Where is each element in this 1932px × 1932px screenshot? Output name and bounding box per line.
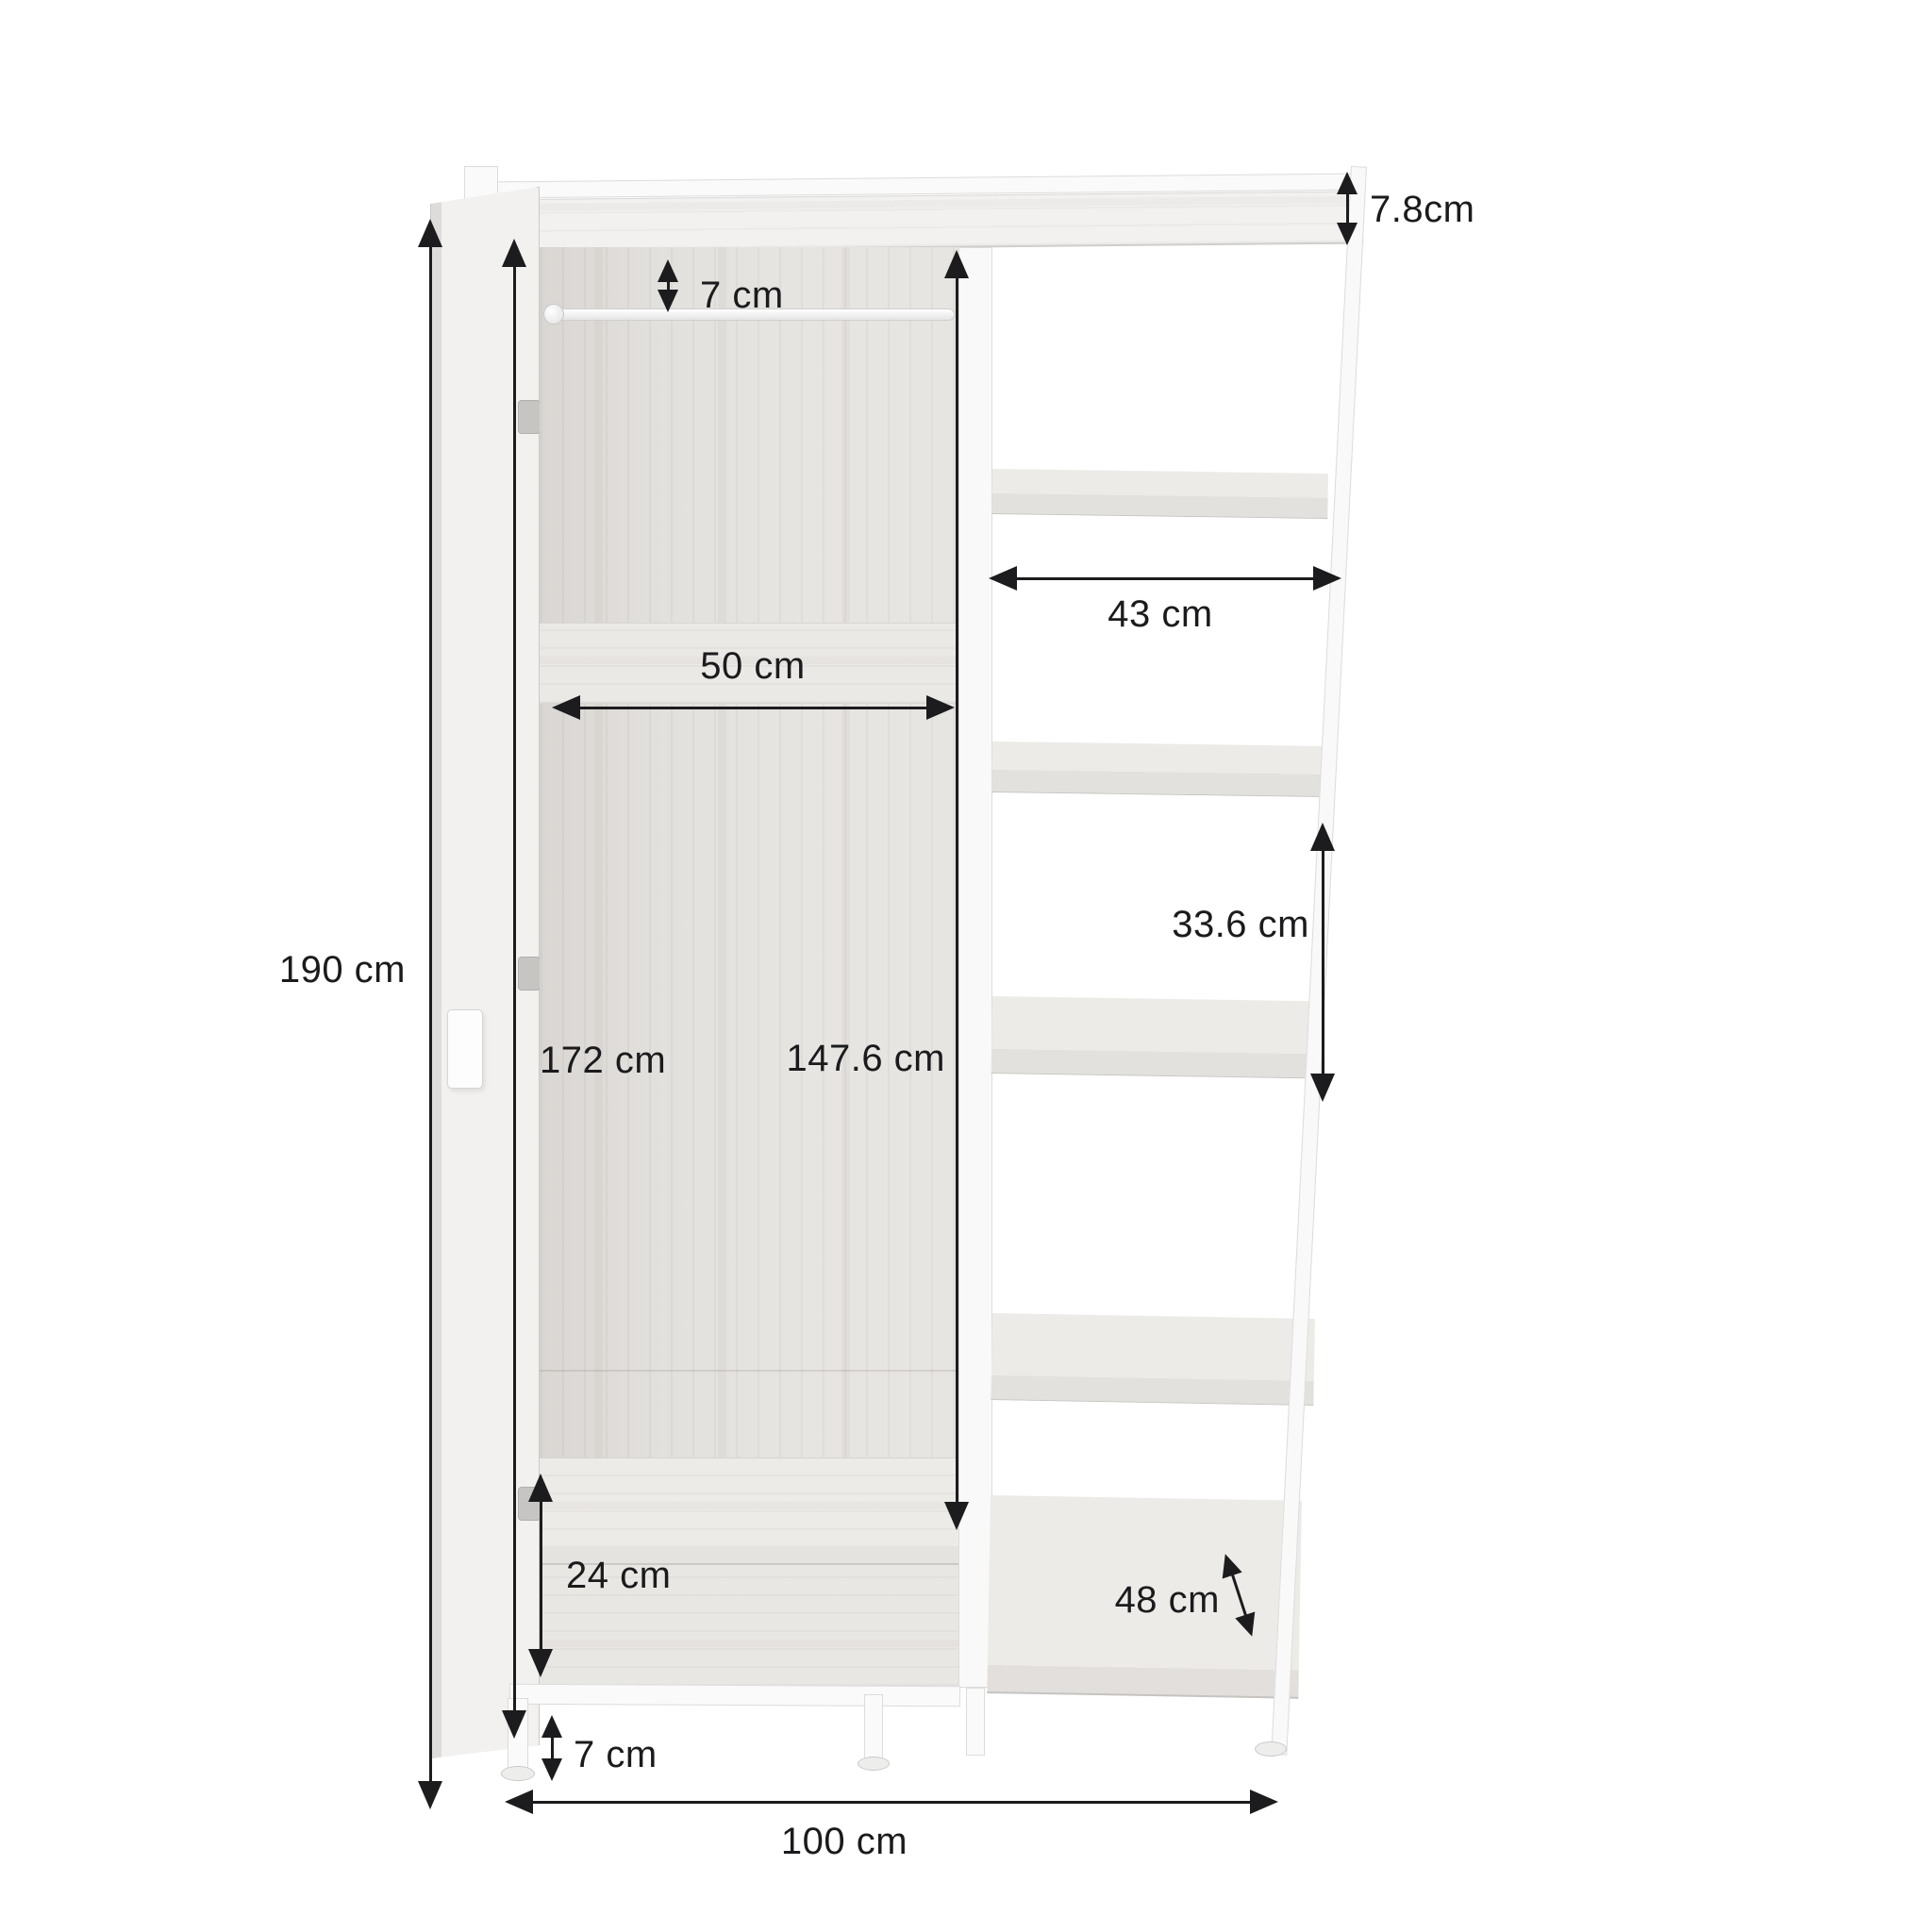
dim-rail-gap-arrow (658, 259, 678, 312)
top-panel (475, 191, 1363, 252)
dim-shelf-spacing-arrow (1310, 823, 1335, 1102)
interior-seam (540, 1370, 958, 1372)
shelf-3 (991, 996, 1321, 1078)
compartment-bottom-shelf (540, 1457, 958, 1548)
dim-top-frame-arrow (1337, 172, 1357, 245)
leg-center-rear-foot (858, 1757, 890, 1771)
dim-shelf-width-arrow (989, 566, 1341, 591)
shelf-4 (991, 1313, 1315, 1406)
dim-total-width-arrow (505, 1790, 1278, 1814)
dim-shelf-depth-label: 48 cm (1031, 1579, 1220, 1622)
hanging-rail-end-cap (543, 304, 564, 325)
dim-shelf-spacing-label: 33.6 cm (1113, 904, 1309, 946)
wardrobe-dimension-diagram: 190 cm 172 cm 147.6 cm 50 cm 7 cm 7.8cm … (0, 0, 1932, 1932)
dim-interior-height-arrow (944, 250, 969, 1530)
dim-bottom-compartment-arrow (528, 1474, 553, 1677)
dim-door-height-label: 172 cm (540, 1040, 666, 1082)
dim-leg-height-label: 7 cm (574, 1734, 658, 1776)
dim-rail-gap-label: 7 cm (700, 275, 784, 317)
front-base-rail (509, 1684, 960, 1707)
dim-total-height-label: 190 cm (226, 949, 406, 991)
dim-interior-height-label: 147.6 cm (745, 1038, 945, 1080)
leg-right-foot (1255, 1741, 1287, 1757)
dim-shelf-width-label: 43 cm (1061, 593, 1259, 636)
dim-top-frame-label: 7.8cm (1370, 189, 1474, 231)
shelf-2 (991, 741, 1324, 797)
dim-interior-width-label: 50 cm (649, 645, 857, 688)
leg-front-left-foot (501, 1766, 535, 1781)
dim-interior-width-arrow (552, 695, 955, 720)
dim-bottom-compartment-label: 24 cm (566, 1555, 671, 1597)
dim-leg-height-arrow (541, 1715, 562, 1781)
dim-total-width-label: 100 cm (739, 1821, 950, 1863)
leg-center-rear (864, 1694, 883, 1766)
shelf-1 (991, 469, 1328, 519)
leg-center-divider (966, 1688, 985, 1756)
dim-total-height-arrow (418, 219, 442, 1809)
dim-door-height-arrow (502, 239, 526, 1739)
door-handle[interactable] (447, 1009, 483, 1089)
